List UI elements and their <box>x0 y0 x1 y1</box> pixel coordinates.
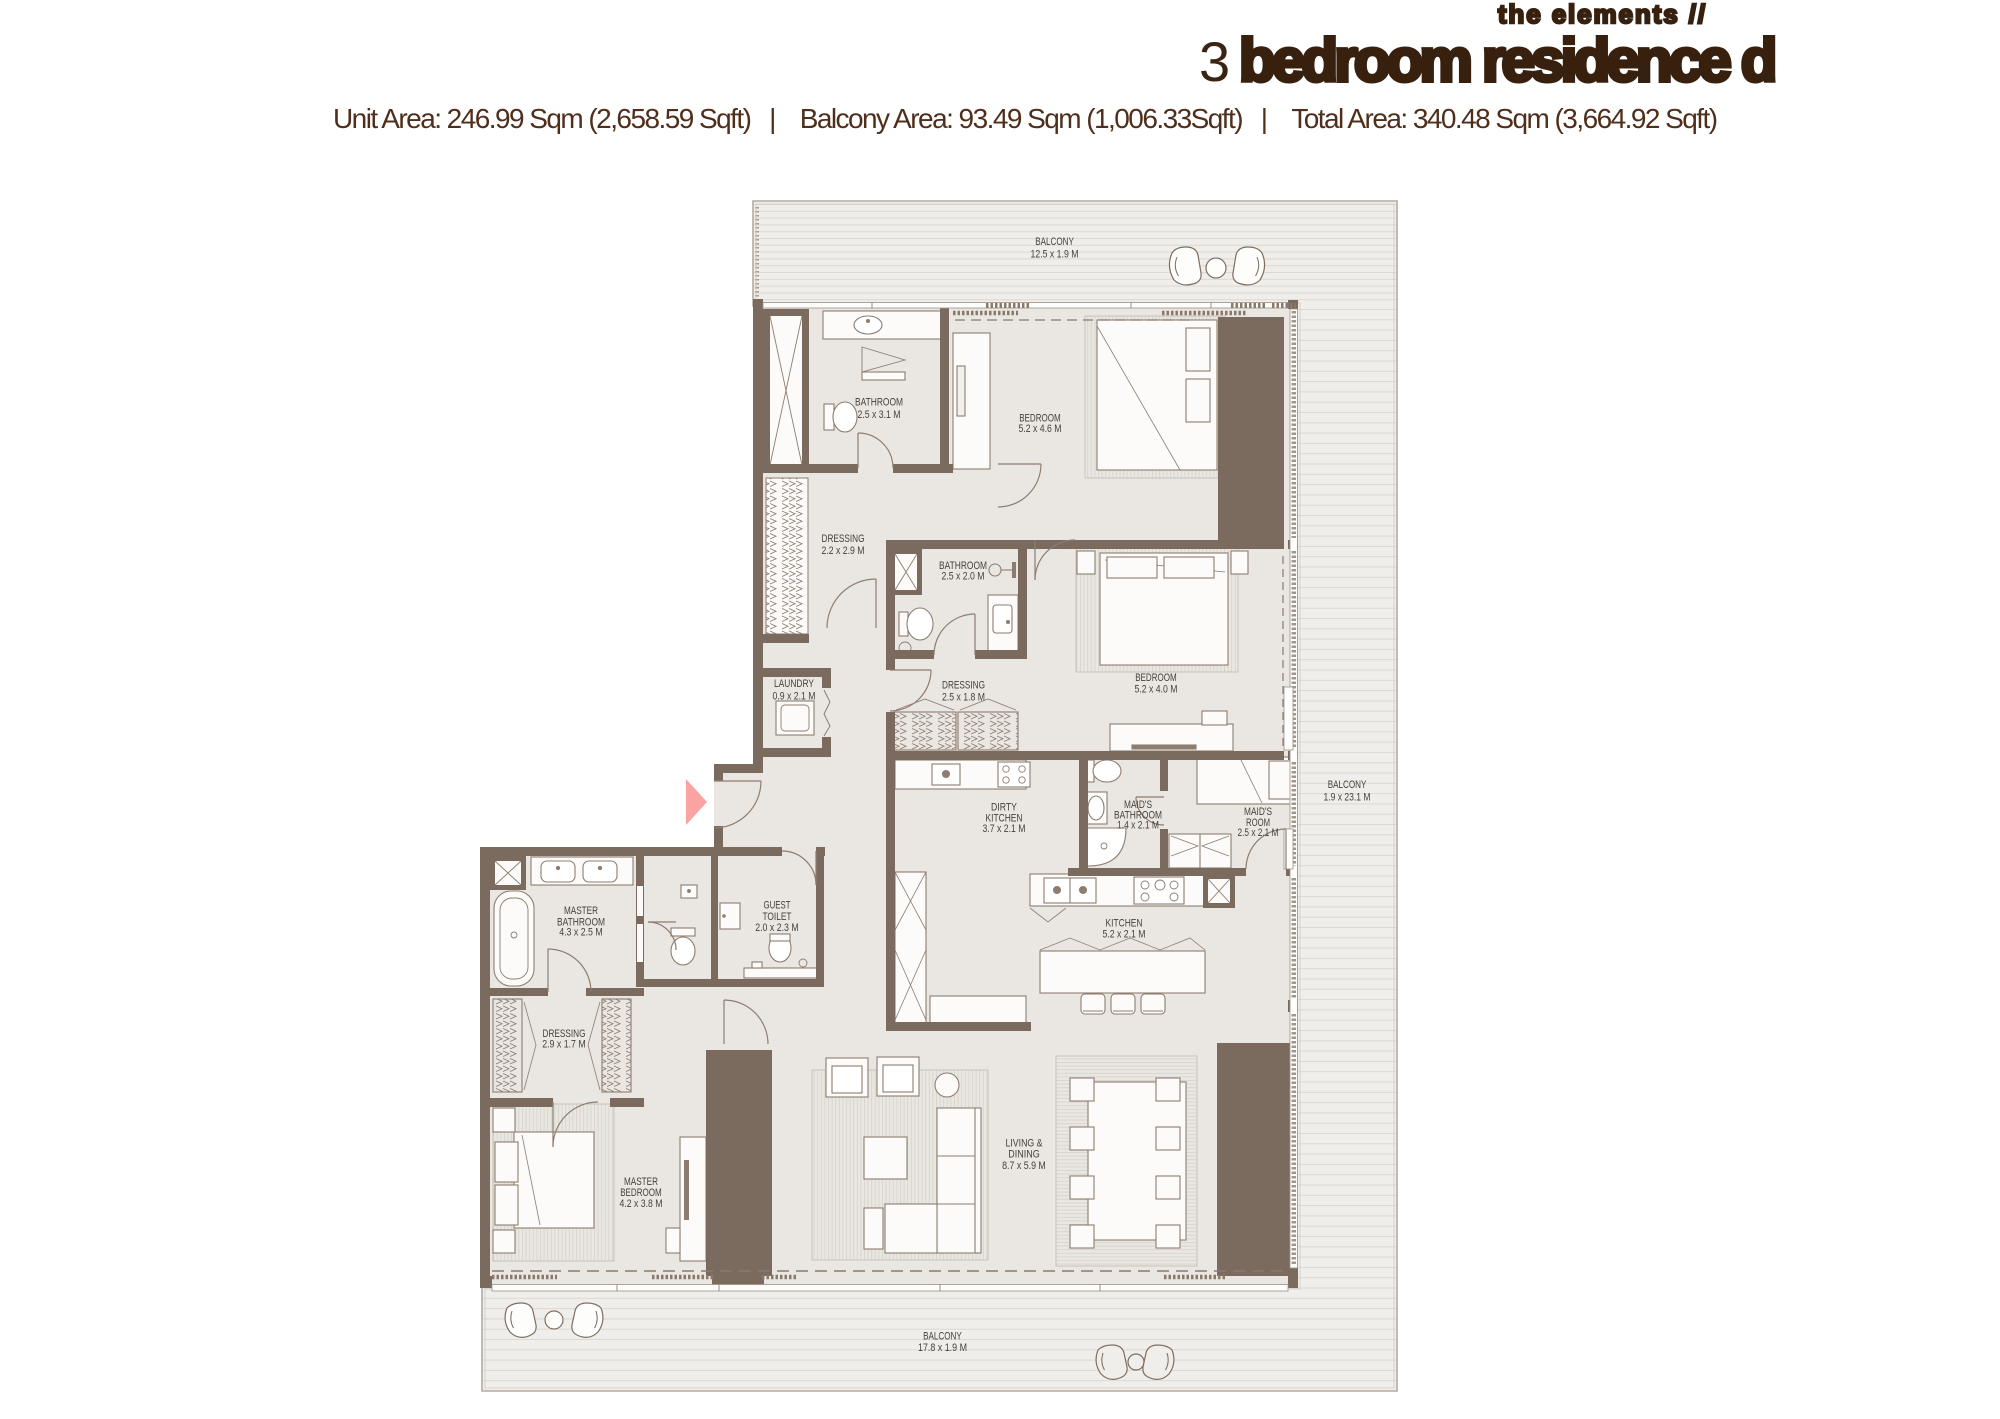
svg-text:LAUNDRY: LAUNDRY <box>774 678 815 690</box>
svg-text:DRESSING: DRESSING <box>942 679 985 691</box>
svg-text:2.5 x 3.1 M: 2.5 x 3.1 M <box>858 409 901 421</box>
svg-text:0.9 x 2.1 M: 0.9 x 2.1 M <box>773 691 816 703</box>
svg-text:1.4 x 2.1 M: 1.4 x 2.1 M <box>1117 820 1159 832</box>
svg-text:BALCONY: BALCONY <box>1328 779 1367 791</box>
svg-text:BALCONY: BALCONY <box>923 1331 962 1343</box>
svg-text:DRESSING: DRESSING <box>822 533 865 545</box>
svg-text:DINING: DINING <box>1008 1148 1039 1160</box>
svg-text:2.0 x 2.3 M: 2.0 x 2.3 M <box>755 922 799 934</box>
svg-text:GUEST: GUEST <box>764 900 791 912</box>
svg-text:MASTER: MASTER <box>564 905 598 917</box>
svg-text:12.5 x 1.9 M: 12.5 x 1.9 M <box>1031 249 1079 261</box>
svg-text:4.2 x 3.8 M: 4.2 x 3.8 M <box>620 1198 663 1210</box>
svg-text:2.5 x 2.0 M: 2.5 x 2.0 M <box>942 571 985 583</box>
svg-text:5.2 x 4.0 M: 5.2 x 4.0 M <box>1135 683 1178 695</box>
svg-text:1.9 x 23.1 M: 1.9 x 23.1 M <box>1324 791 1371 803</box>
svg-text:2.2 x 2.9 M: 2.2 x 2.9 M <box>822 545 865 557</box>
svg-text:TOILET: TOILET <box>763 911 792 923</box>
svg-text:BALCONY: BALCONY <box>1035 236 1074 248</box>
svg-text:5.2 x 4.6 M: 5.2 x 4.6 M <box>1019 423 1062 435</box>
svg-text:Unit Area: 246.99 Sqm (2,658.5: Unit Area: 246.99 Sqm (2,658.59 Sqft) | … <box>333 103 1717 134</box>
svg-text:bedroom residence d: bedroom residence d <box>1239 27 1774 94</box>
svg-text:4.3 x 2.5 M: 4.3 x 2.5 M <box>559 927 603 939</box>
svg-text:2.9 x 1.7 M: 2.9 x 1.7 M <box>542 1039 586 1051</box>
svg-text:2.5 x 1.8 M: 2.5 x 1.8 M <box>942 691 985 703</box>
svg-text:8.7 x 5.9 M: 8.7 x 5.9 M <box>1002 1160 1046 1172</box>
svg-text:3.7 x 2.1 M: 3.7 x 2.1 M <box>983 823 1026 835</box>
svg-text:the elements //: the elements // <box>1498 0 1707 29</box>
svg-text:BEDROOM: BEDROOM <box>1135 672 1177 684</box>
svg-text:2.5 x 2.1 M: 2.5 x 2.1 M <box>1238 827 1279 839</box>
svg-text:17.8 x 1.9 M: 17.8 x 1.9 M <box>918 1342 967 1354</box>
svg-text:3: 3 <box>1199 30 1230 93</box>
svg-text:5.2 x 2.1 M: 5.2 x 2.1 M <box>1103 929 1146 941</box>
svg-text:BATHROOM: BATHROOM <box>855 397 903 409</box>
